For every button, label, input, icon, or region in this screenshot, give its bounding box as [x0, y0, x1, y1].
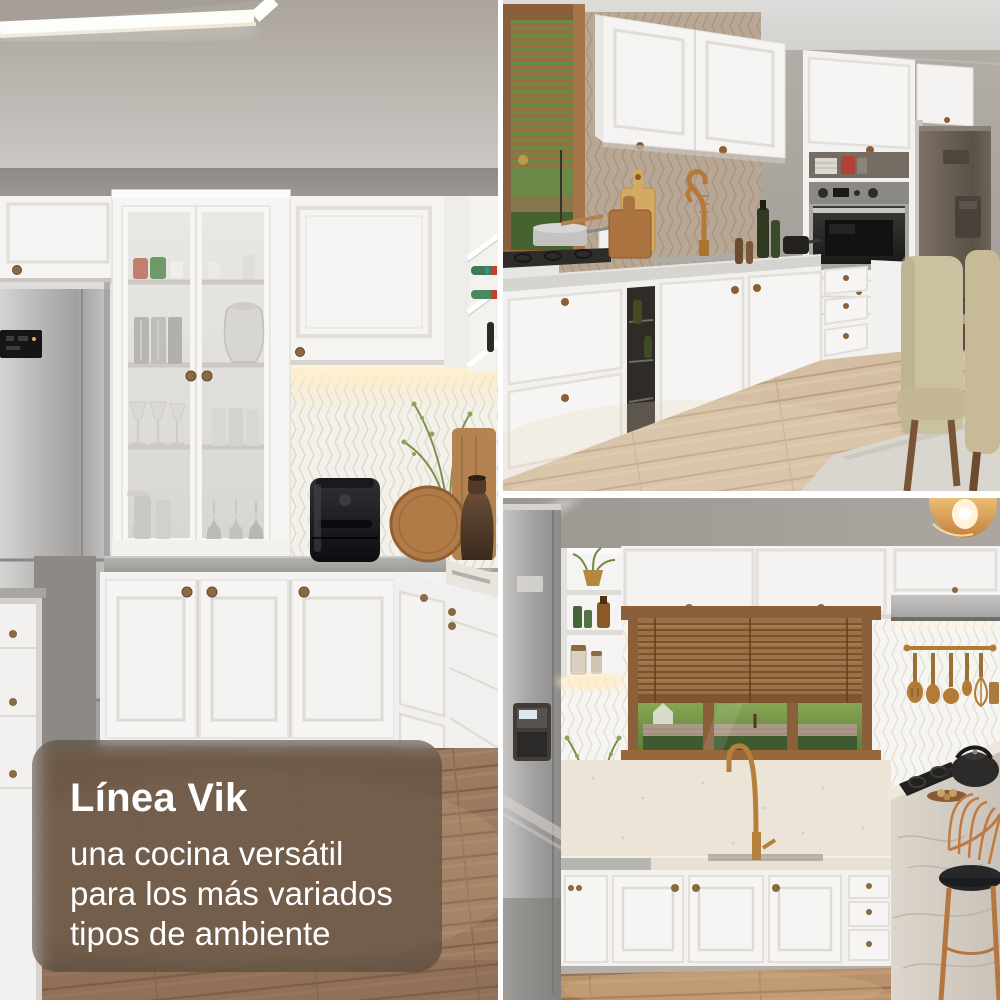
caption-line: para los más variados — [70, 874, 422, 914]
upper-cabinet-left — [0, 196, 118, 283]
fridge-badge — [517, 576, 543, 592]
hedge-view — [643, 736, 857, 750]
air-fryer — [310, 478, 380, 562]
book-stack — [815, 158, 837, 174]
kitchen-collage: Línea Vik una cocina versátil para los m… — [0, 0, 1000, 1000]
amber-bottle — [597, 602, 610, 628]
photo-kitchen-top-right — [503, 0, 1000, 491]
brick-view — [511, 196, 573, 214]
photo-kitchen-left: Línea Vik una cocina versátil para los m… — [0, 0, 498, 1000]
caption-text: una cocina versátil para los más variado… — [70, 834, 422, 954]
shelf-underlight — [557, 674, 625, 690]
photo-kitchen-bottom-right — [503, 498, 1000, 1000]
panel-divider-vertical — [498, 0, 503, 1000]
range-hood — [891, 595, 1000, 628]
drawer-stack — [825, 267, 867, 356]
sink — [708, 854, 823, 861]
fridge-display — [0, 330, 42, 358]
upper-cabinet-right — [286, 196, 446, 365]
olive-oil-bottle — [757, 208, 769, 258]
base-cabinets — [561, 870, 891, 974]
wooden-vase — [460, 492, 493, 560]
corner-open-shelves — [557, 548, 625, 690]
jar — [571, 648, 586, 674]
window-latch — [518, 155, 528, 165]
water-dispenser — [513, 703, 551, 761]
hood-cabinet — [891, 546, 1000, 595]
stone-backsplash-counter — [561, 760, 891, 872]
fridge-display — [943, 150, 969, 164]
pepper-mill — [746, 241, 753, 264]
cutting-board-round — [391, 487, 465, 561]
drawer-stack — [847, 872, 891, 966]
pepper-mill — [735, 238, 743, 264]
wine-glasses — [130, 402, 185, 444]
oil-bottle — [771, 220, 780, 258]
caption-line: una cocina versátil — [70, 834, 422, 874]
window-panes — [638, 703, 862, 750]
jar — [591, 654, 602, 674]
caption-card: Línea Vik una cocina versátil para los m… — [32, 740, 442, 972]
caption-line: tipos de ambiente — [70, 914, 422, 954]
corner-wine-rack — [444, 196, 498, 372]
window — [621, 606, 881, 760]
refrigerator — [503, 504, 561, 1000]
brick-wall-view — [643, 724, 857, 738]
red-book — [841, 156, 855, 174]
ceiling — [0, 0, 498, 178]
wall-oven — [809, 182, 909, 270]
panel-divider-horizontal — [498, 491, 1000, 498]
green-bottle — [573, 606, 582, 628]
grater — [989, 682, 999, 704]
wood-blind — [638, 618, 862, 703]
black-pot — [783, 236, 809, 254]
glass-door-hutch — [112, 190, 290, 556]
green-bottle — [584, 610, 592, 628]
counter-gray — [561, 856, 651, 870]
caption-title: Línea Vik — [70, 776, 422, 820]
